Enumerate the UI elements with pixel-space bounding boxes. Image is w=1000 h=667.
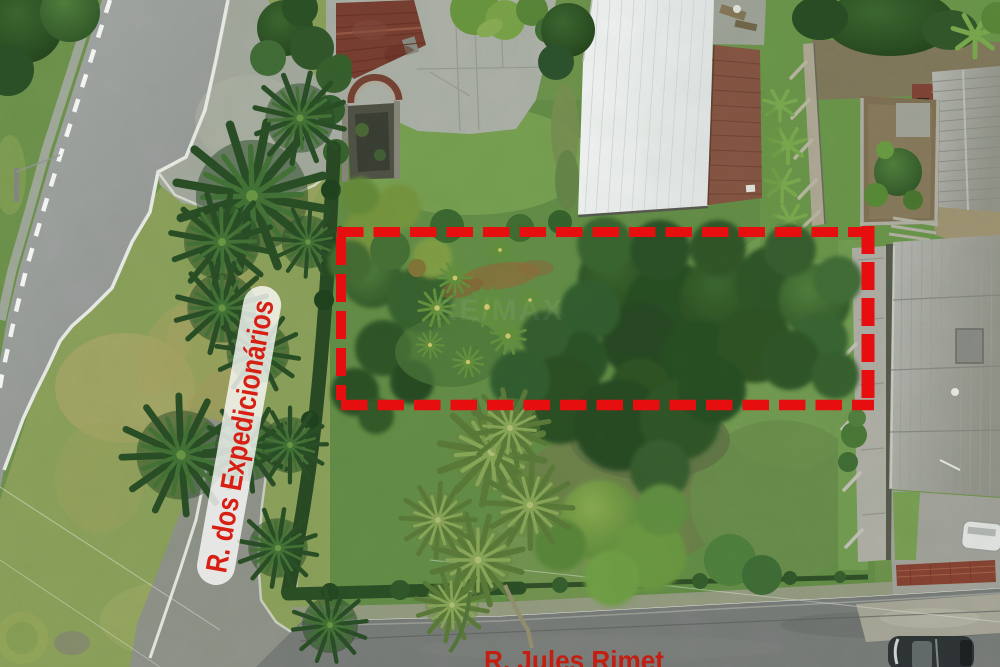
svg-text:R. Jules Rimet: R. Jules Rimet: [484, 645, 664, 667]
